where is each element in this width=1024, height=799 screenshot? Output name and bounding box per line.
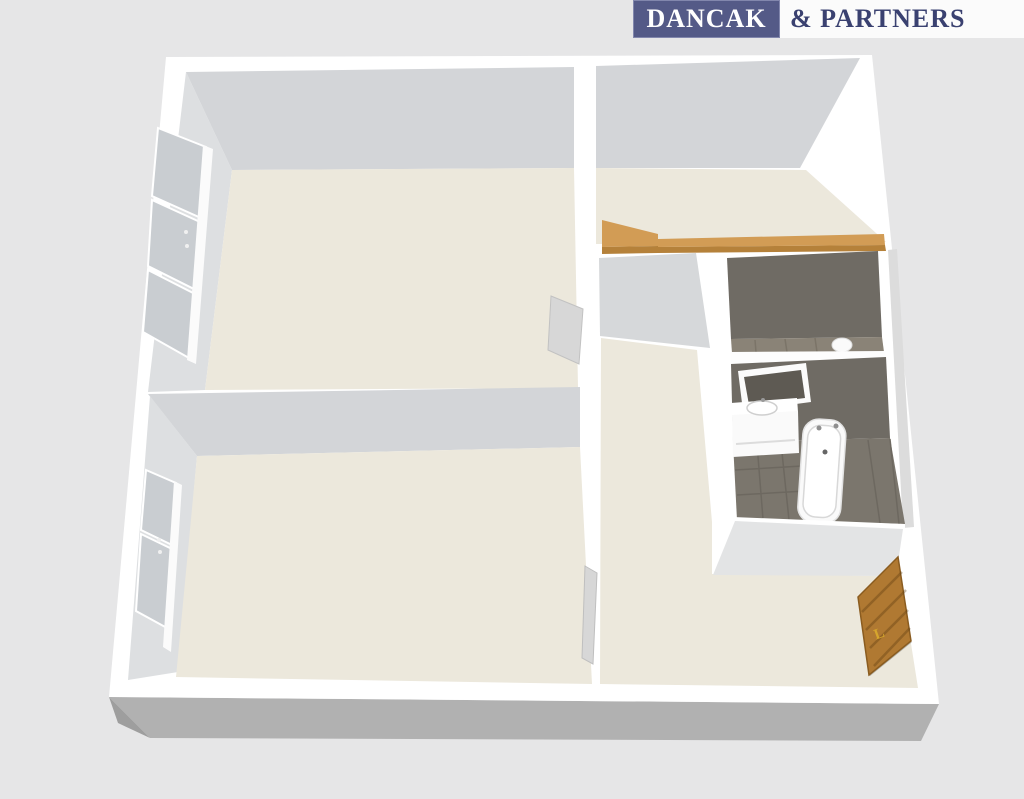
logo-secondary-box: & PARTNERS bbox=[780, 0, 1024, 38]
bathtub-faucet-icon bbox=[834, 424, 839, 429]
bathtub-faucet-icon bbox=[817, 426, 822, 431]
bathtub bbox=[797, 418, 847, 525]
living-room-floor bbox=[205, 168, 578, 390]
window-handle-icon bbox=[158, 550, 162, 554]
bedroom-floor bbox=[176, 447, 592, 684]
window-handle-icon bbox=[185, 244, 189, 248]
logo-primary-text: DANCAK bbox=[646, 4, 766, 34]
wc-back-wall bbox=[727, 251, 882, 339]
kitchen-counter-block-front bbox=[602, 246, 658, 254]
apartment-3d-plan: L bbox=[0, 0, 1024, 799]
bathtub-inner bbox=[802, 424, 841, 518]
hallway-north-wall-face bbox=[599, 253, 710, 348]
partition-wall-face bbox=[148, 387, 580, 456]
sink-faucet-icon bbox=[761, 398, 765, 402]
toilet bbox=[832, 338, 852, 352]
logo-secondary-text: & PARTNERS bbox=[790, 4, 965, 34]
sink-basin bbox=[747, 401, 777, 415]
floor-plan-render: L DANCAK & PARTNERS bbox=[0, 0, 1024, 799]
agency-logo: DANCAK & PARTNERS bbox=[633, 0, 1024, 38]
living-room-north-wall-face bbox=[186, 67, 574, 170]
wc-floor bbox=[731, 337, 884, 353]
building-exterior-bottom-face bbox=[109, 697, 939, 741]
logo-primary-box: DANCAK bbox=[633, 0, 780, 38]
window-handle-icon bbox=[184, 230, 188, 234]
vanity-front bbox=[732, 411, 799, 457]
bathtub-drain-icon bbox=[823, 450, 828, 455]
bathroom-south-wall-face bbox=[713, 521, 903, 576]
window-handle-icon bbox=[157, 538, 161, 542]
